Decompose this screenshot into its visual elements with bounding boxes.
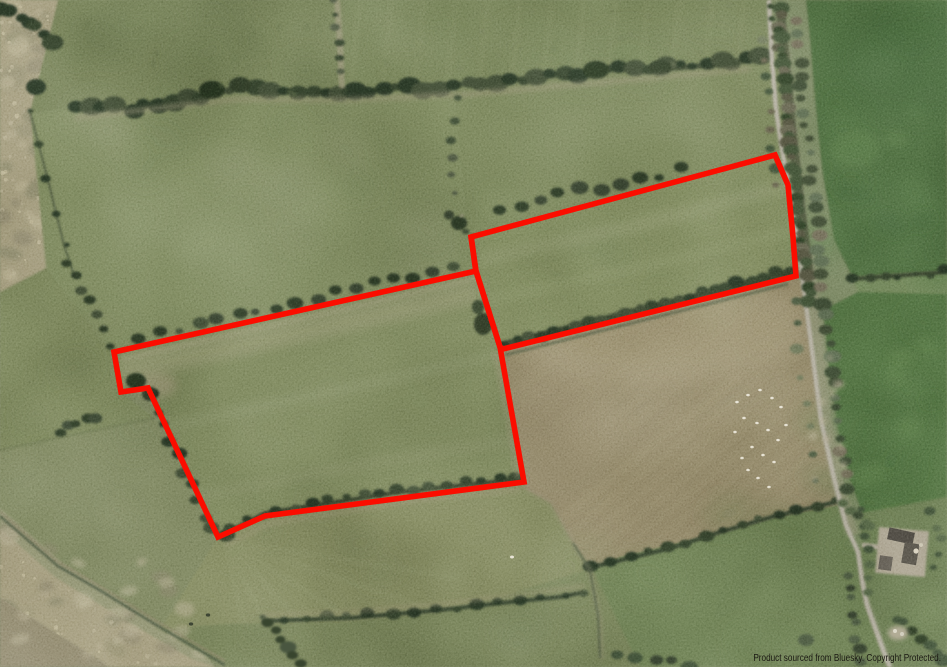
svg-text:Product sourced from Bluesky.: Product sourced from Bluesky. Copyright …	[753, 651, 941, 663]
